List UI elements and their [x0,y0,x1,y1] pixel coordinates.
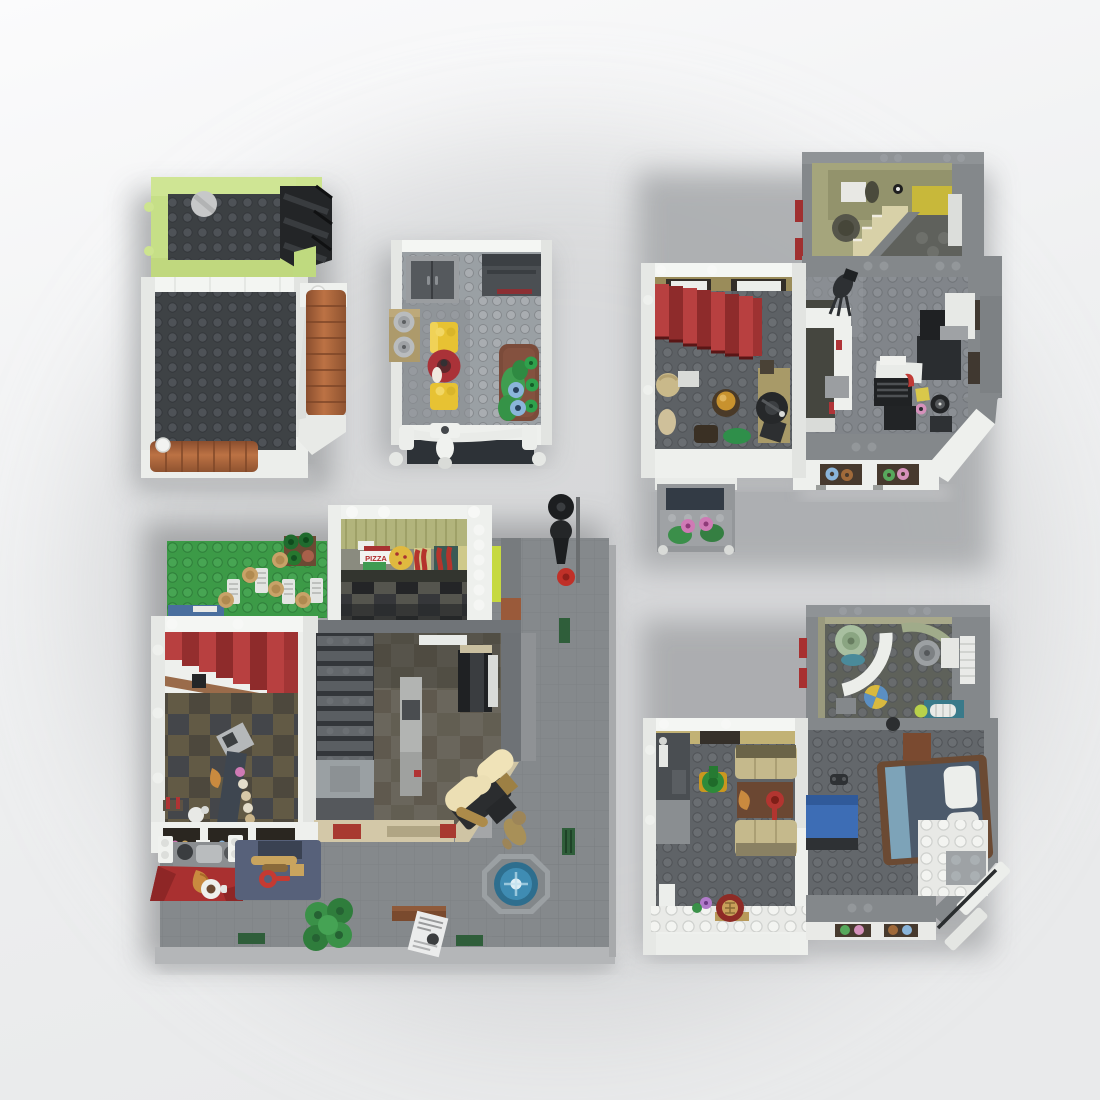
svg-text:PIZZA: PIZZA [365,554,387,563]
